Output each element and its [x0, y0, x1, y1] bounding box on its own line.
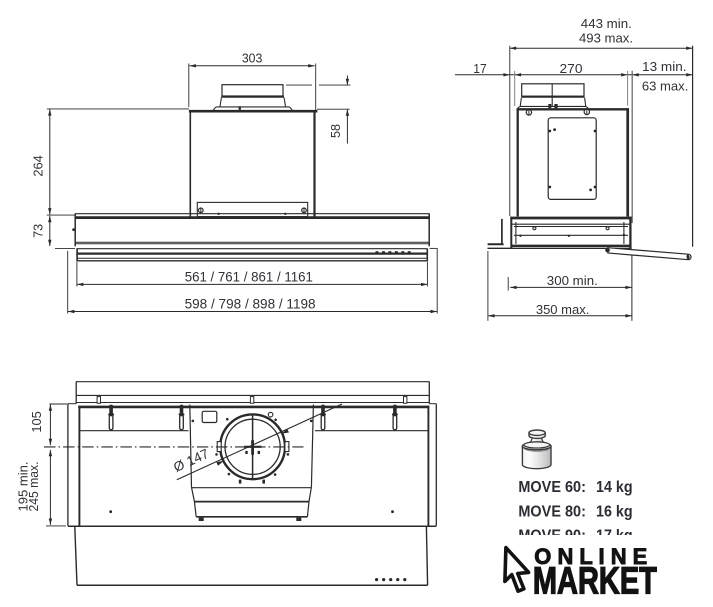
svg-text:245 max.: 245 max. [26, 462, 41, 512]
svg-text:270: 270 [560, 61, 583, 76]
svg-text:105: 105 [29, 411, 44, 433]
svg-text:264: 264 [31, 155, 46, 177]
svg-text:561 / 761 / 861 / 1161: 561 / 761 / 861 / 1161 [185, 268, 313, 284]
svg-text:303: 303 [242, 50, 263, 65]
svg-text:493 max.: 493 max. [579, 30, 633, 45]
svg-text:17: 17 [473, 61, 487, 76]
svg-text:73: 73 [31, 224, 46, 238]
svg-text:598 / 798 / 898 / 1198: 598 / 798 / 898 / 1198 [185, 295, 316, 311]
svg-text:14 kg: 14 kg [596, 479, 633, 496]
svg-text:MARKET: MARKET [533, 560, 657, 602]
svg-text:58: 58 [328, 124, 343, 138]
svg-text:63 max.: 63 max. [642, 79, 689, 94]
svg-text:MOVE 60:: MOVE 60: [518, 479, 586, 496]
svg-text:13 min.: 13 min. [642, 59, 687, 74]
svg-text:16 kg: 16 kg [596, 503, 633, 520]
svg-text:MOVE 80:: MOVE 80: [518, 503, 586, 520]
svg-text:443 min.: 443 min. [581, 16, 632, 31]
svg-text:300 min.: 300 min. [547, 273, 598, 288]
svg-text:350 max.: 350 max. [536, 302, 590, 317]
